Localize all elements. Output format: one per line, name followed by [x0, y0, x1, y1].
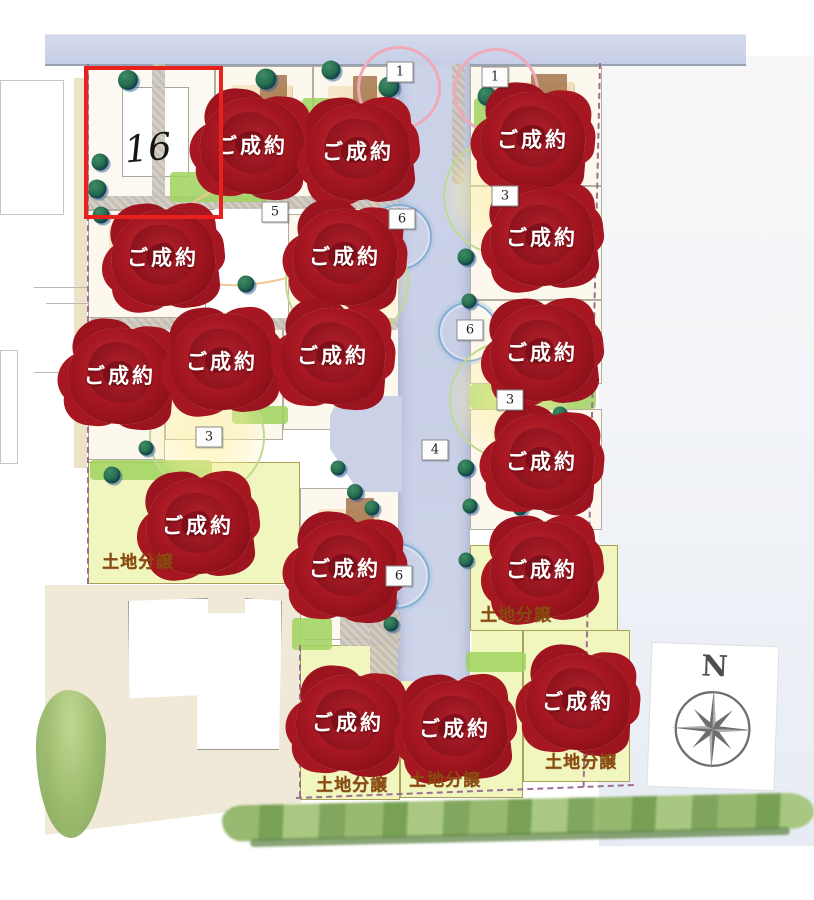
number-marker: 6: [389, 209, 416, 230]
land-sale-label: 土地分譲: [409, 766, 481, 791]
sold-stamp-label: ご成約: [127, 242, 199, 272]
sold-stamp-label: ご成約: [162, 510, 234, 540]
neighbor-structure: [34, 287, 88, 289]
sold-stamp-label: ご成約: [506, 222, 578, 252]
sold-rose-stamp: ご成約: [111, 210, 215, 306]
land-sale-label: 土地分譲: [545, 748, 617, 773]
land-sale-label: 土地分譲: [480, 601, 552, 626]
compass-rose-icon: [665, 681, 760, 776]
neighbor-structure: [0, 80, 64, 215]
sold-rose-stamp: ご成約: [170, 314, 274, 410]
number-marker: 1: [482, 67, 509, 88]
grass-strip: [466, 652, 526, 672]
tree-icon: [139, 441, 154, 456]
sold-stamp-label: ご成約: [297, 340, 369, 370]
tree-icon: [458, 460, 475, 477]
number-marker: 3: [497, 390, 524, 411]
sold-rose-stamp: ご成約: [481, 92, 585, 188]
sold-rose-stamp: ご成約: [526, 654, 630, 750]
tree-icon: [458, 249, 475, 266]
tree-icon: [384, 617, 399, 632]
lot16-number: 16: [123, 125, 174, 172]
sold-stamp-label: ご成約: [186, 346, 258, 376]
tree-icon: [462, 294, 477, 309]
number-marker: 1: [387, 62, 414, 83]
sold-rose-stamp: ご成約: [293, 209, 397, 305]
sold-stamp-label: ご成約: [309, 241, 381, 271]
sold-stamp-label: ご成約: [322, 136, 394, 166]
tree-icon: [322, 61, 341, 80]
sold-rose-stamp: ご成約: [68, 328, 172, 424]
number-marker: 5: [262, 202, 289, 223]
sold-stamp-label: ご成約: [506, 446, 578, 476]
sold-stamp-label: ご成約: [419, 713, 491, 743]
sold-rose-stamp: ご成約: [490, 305, 594, 401]
sold-rose-stamp: ご成約: [296, 675, 400, 771]
land-sale-label: 土地分譲: [102, 548, 174, 573]
number-marker: 4: [422, 440, 449, 461]
sold-stamp-label: ご成約: [497, 124, 569, 154]
land-sale-label: 土地分譲: [316, 771, 388, 796]
sold-stamp-label: ご成約: [506, 337, 578, 367]
sold-rose-stamp: ご成約: [403, 681, 507, 777]
grass-strip: [292, 618, 332, 650]
tree-icon: [238, 276, 255, 293]
sold-stamp-label: ご成約: [506, 554, 578, 584]
site-plan-map: ご成約 ご成約 ご成約 ご成約 ご成約 ご成約 ご成約 ご成約: [0, 0, 814, 900]
neighbor-structure: [46, 303, 88, 305]
tree-icon: [104, 467, 121, 484]
road-widening: [330, 396, 402, 492]
sold-stamp-label: ご成約: [216, 130, 288, 160]
compass: N: [648, 643, 779, 790]
tree-icon: [347, 484, 363, 500]
sold-rose-stamp: ご成約: [306, 104, 410, 200]
sold-stamp-label: ご成約: [542, 686, 614, 716]
sold-rose-stamp: ご成約: [490, 414, 594, 510]
number-marker: 6: [457, 320, 484, 341]
tree-icon: [256, 69, 277, 90]
neighbor-structure: [0, 350, 18, 464]
number-marker: 6: [386, 566, 413, 587]
sold-stamp-label: ご成約: [312, 707, 384, 737]
compass-north-label: N: [651, 647, 778, 685]
number-marker: 3: [196, 427, 223, 448]
sold-rose-stamp: ご成約: [293, 521, 397, 617]
tree-icon: [459, 553, 474, 568]
tree-icon: [463, 499, 478, 514]
tree-icon: [365, 501, 380, 516]
sold-stamp-label: ご成約: [309, 553, 381, 583]
tree-icon: [331, 461, 346, 476]
number-marker: 3: [492, 186, 519, 207]
sold-stamp-label: ご成約: [84, 360, 156, 390]
sold-rose-stamp: ご成約: [281, 308, 385, 404]
